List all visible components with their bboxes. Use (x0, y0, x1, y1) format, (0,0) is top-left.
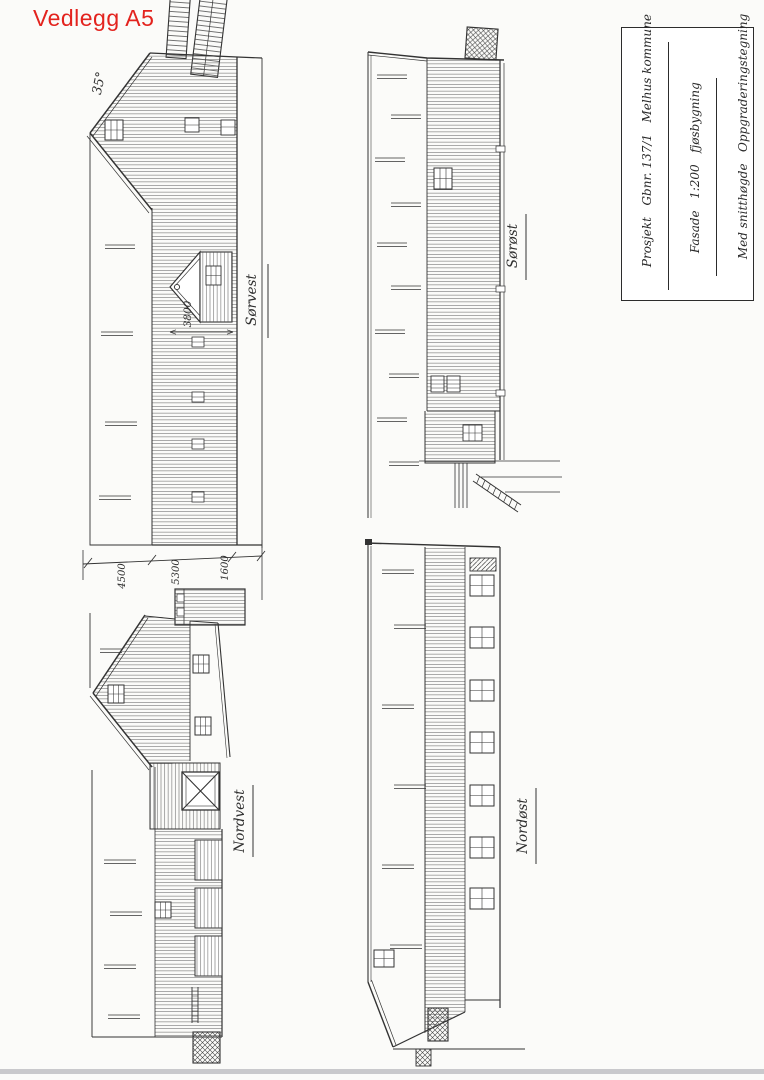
vent-hatch (470, 558, 496, 571)
porch-posts (455, 463, 467, 508)
title-block-project-line: Prosjekt Gbnr. 137/1 Melhus kommune (626, 42, 669, 290)
window (155, 902, 171, 918)
window (108, 685, 124, 703)
elevation-drawing-nordost: Nordøst (360, 530, 560, 1080)
hatch-door (185, 118, 199, 132)
title-block-content: Prosjekt Gbnr. 137/1 Melhus kommune Fasa… (622, 28, 749, 296)
far-roof-edge (190, 621, 230, 758)
roof-angle-annotation: 35° (90, 70, 109, 96)
window (463, 425, 482, 441)
ground-lines (419, 461, 562, 492)
hatch-door (221, 120, 235, 135)
elevation-label-nordost: Nordøst (515, 798, 531, 855)
elevation-drawing-nordvest: Nordvest (80, 585, 280, 1077)
elevation-label-sorvest: Sørvest (244, 274, 260, 326)
gable (90, 615, 190, 770)
foundation-stub (416, 1049, 431, 1066)
roof-plane (368, 543, 426, 982)
scan-edge-shadow (0, 1069, 764, 1074)
plank-door (195, 888, 222, 928)
title-block-facade-line: Fasade 1:200 fjøsbygning (674, 78, 717, 276)
chimney (166, 0, 190, 59)
elevation-drawing-sorost: Sørøst (355, 18, 570, 530)
window (105, 120, 123, 140)
window (374, 950, 394, 967)
project-text: Prosjekt Gbnr. 137/1 Melhus kommune (640, 14, 654, 267)
plank-door (195, 840, 222, 880)
elevation-label-nordvest: Nordvest (232, 789, 248, 854)
window (195, 717, 211, 735)
dimension-value: 5300 (171, 559, 182, 585)
chimney (428, 1008, 448, 1041)
top-edge (365, 543, 500, 547)
lattice-chimney (465, 27, 498, 60)
window-row (470, 575, 494, 909)
stairs (473, 474, 521, 512)
note-text: Med snitthøgde Oppgraderingstegning (736, 14, 750, 259)
cross-braced-door (182, 772, 219, 810)
facade-text: Fasade 1:200 fjøsbygning (688, 82, 702, 253)
elevation-label-sorost: Sørøst (505, 223, 521, 268)
dimension-value: 1600 (220, 555, 231, 581)
main-wall (427, 58, 504, 460)
window (193, 655, 209, 673)
window (206, 266, 221, 285)
chimney (193, 1032, 220, 1063)
roof-plane (92, 770, 155, 1037)
title-block: Prosjekt Gbnr. 137/1 Melhus kommune Fasa… (621, 27, 754, 301)
title-block-note-line: Med snitthøgde Oppgraderingstegning (722, 54, 764, 282)
dimension-value: 3800 (182, 300, 194, 327)
annex (425, 411, 495, 463)
siding-band (425, 547, 465, 1042)
elevation-drawing-sorvest: 35° 3800 4500 5300 1600 Sørvest (75, 0, 275, 600)
window (434, 168, 452, 189)
plank-door (195, 936, 222, 976)
roof-monitor (175, 589, 245, 625)
